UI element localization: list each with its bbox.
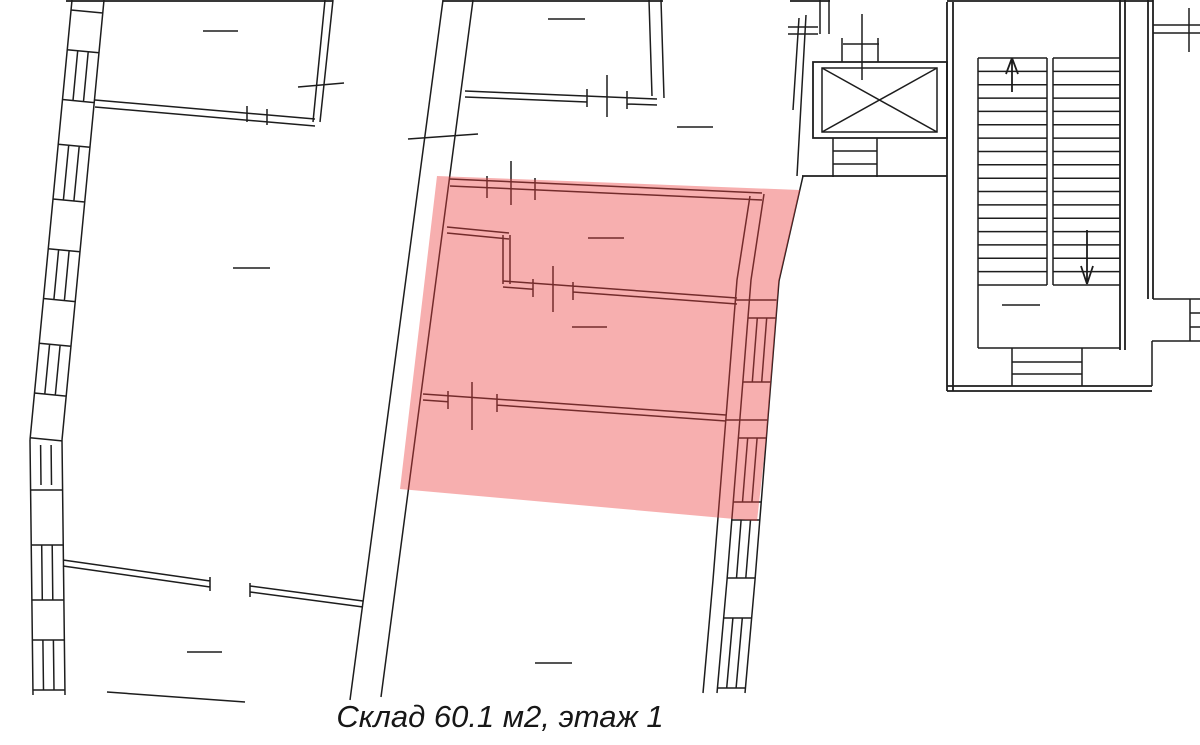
stairwell-right-passage (1152, 299, 1200, 386)
left-exterior-wall-lower (30, 440, 65, 695)
bottom-partition-wall (63, 560, 363, 702)
stair-up-arrow-icon (1006, 58, 1018, 92)
stairwell-right-door (1153, 25, 1200, 33)
floor-plan-svg (0, 0, 1200, 745)
highlight-region (400, 176, 800, 521)
floor-plan-page: Склад 60.1 м2, этаж 1 (0, 0, 1200, 745)
elevator-x-mark (822, 68, 937, 132)
left-exterior-wall-upper (30, 0, 104, 441)
stairwell (947, 0, 1200, 391)
stair-treads (978, 58, 1120, 285)
top-middle-partition (465, 0, 664, 109)
elevator-shaft (813, 14, 947, 177)
elevator-door-jambs (842, 38, 879, 62)
stair-entry-steps (1012, 348, 1082, 386)
top-left-room-door-marker (298, 83, 344, 87)
plan-caption: Склад 60.1 м2, этаж 1 (290, 699, 710, 735)
top-left-room-walls (95, 0, 333, 126)
elevator-lobby-walls (788, 0, 829, 176)
corridor-door-marker (408, 134, 478, 139)
elevator-steps (833, 138, 877, 177)
stair-down-arrow-icon (1081, 230, 1093, 284)
